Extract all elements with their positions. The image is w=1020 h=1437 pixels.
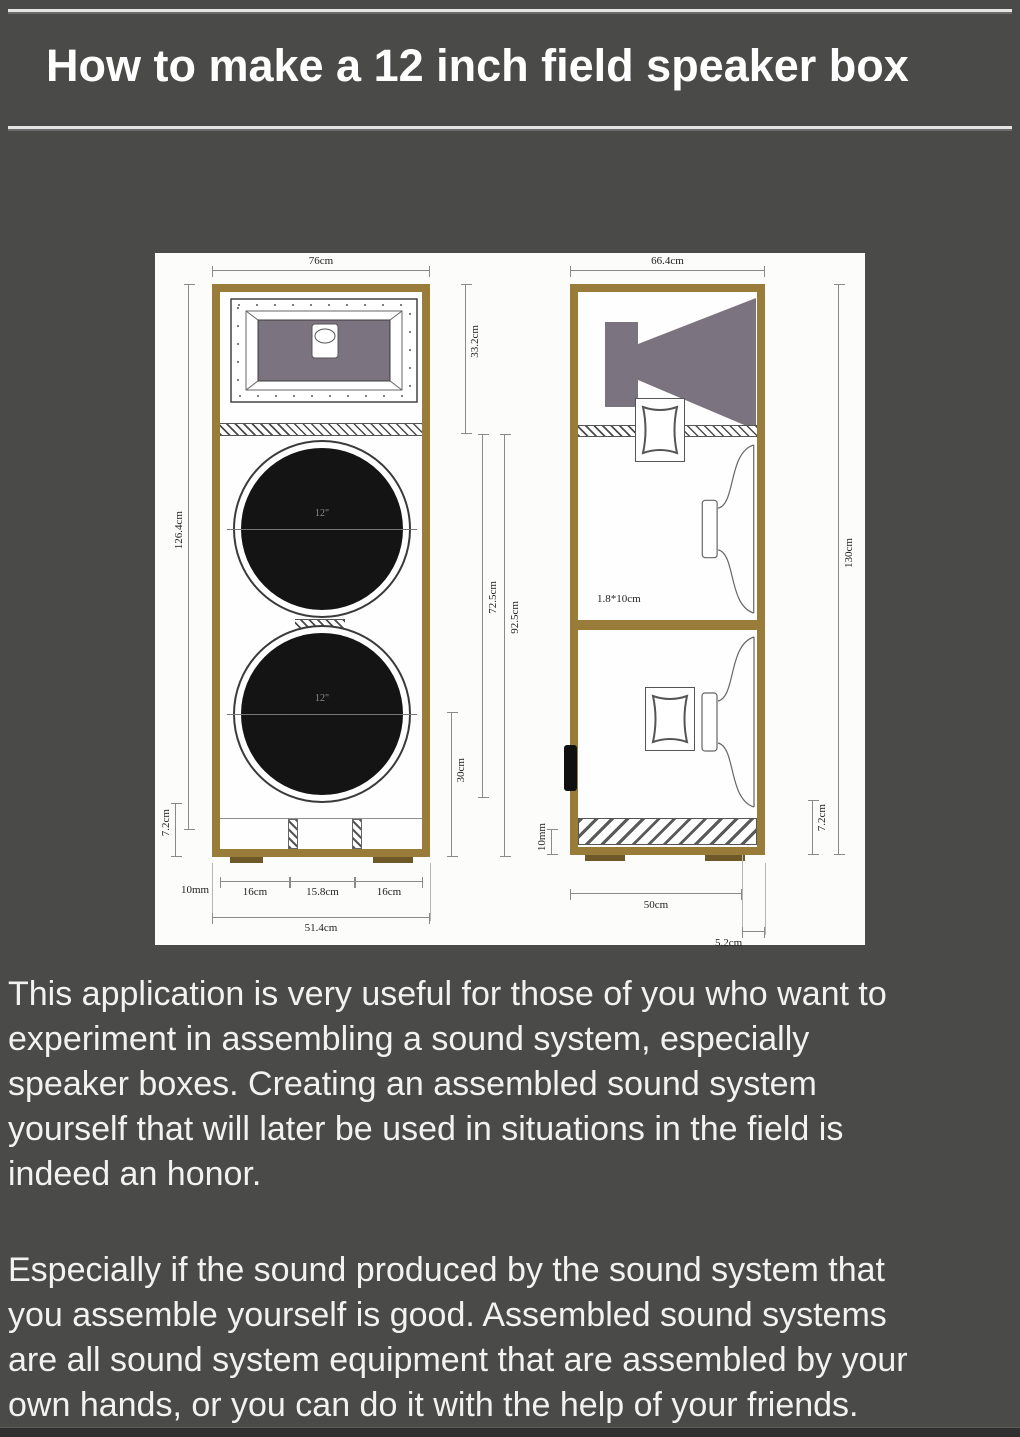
paragraph-2-line-2: you assemble yourself is good. Assembled… [8,1296,887,1334]
lower-speaker-size-label: 12" [235,693,409,704]
dim-line-side-bottom-width [570,893,742,894]
horn-tweeter-front [230,298,418,403]
dim-side-base: 7.2cm [816,804,828,831]
dim-line-side-base [812,800,813,855]
lower-speaker-12in: 12" [233,625,411,803]
paragraph-2-line-4: own hands, or you can do it with the hel… [8,1386,859,1424]
dim-front-base: 7.2cm [160,809,172,836]
speaker-terminal [564,745,577,791]
front-divider-brace [220,423,422,436]
cross-brace-lower-profile [646,688,694,750]
paragraph-1-line-1: This application is very useful for thos… [8,975,887,1013]
dim-line-front-base [175,803,176,857]
paragraph-2: Especially if the sound produced by the … [8,1248,1012,1428]
dim-line-side-top-width [570,270,765,271]
dim-speaker-section: 92.5cm [509,601,521,634]
dim-line-horn-section [465,284,466,434]
paragraph-1-line-4: yourself that will later be used in situ… [8,1110,843,1148]
divider-top [8,9,1012,14]
side-foot-right [705,855,745,861]
ext-line-side-right [765,863,766,935]
lower-woofer-side-profile [700,631,757,813]
page-title: How to make a 12 inch field speaker box [46,40,909,92]
paragraph-1-line-2: experiment in assembling a sound system,… [8,1020,809,1058]
dim-line-front-bottom-width [212,917,430,918]
dim-side-height: 130cm [843,538,855,568]
dim-side-top-width: 66.4cm [570,255,765,267]
upper-speaker-12in: 12" [233,440,411,618]
divider-under-title [8,126,1012,131]
upper-speaker-size-label: 12" [235,508,409,519]
side-foot-left [585,855,625,861]
dim-line-side-height [838,284,839,855]
dim-port-section: 30cm [455,758,467,782]
front-foot-right [373,857,413,863]
dim-side-bottom-width: 50cm [570,899,742,911]
dim-line-speaker-section [504,434,505,857]
paragraph-1: This application is very useful for thos… [8,972,1012,1197]
port-post-right [352,819,362,849]
dim-line-port-left [220,881,290,882]
dim-line-port-section [451,712,452,857]
dim-port-right: 16cm [355,886,423,898]
dim-side-offset: 5.2cm [715,937,742,949]
dim-side-wall-thickness: 10mm [536,823,548,851]
dim-front-top-width: 76cm [212,255,430,267]
upper-speaker-centerline [227,529,417,530]
dim-line-front-height [188,284,189,830]
upper-woofer-side-profile [700,439,757,619]
paragraph-1-line-5: indeed an honor. [8,1155,261,1193]
dim-front-height: 126.4cm [173,511,185,549]
paragraph-1-line-3: speaker boxes. Creating an assembled sou… [8,1065,817,1103]
dim-horn-section: 33.2cm [469,325,481,358]
cross-brace-upper-profile [636,399,684,461]
dim-line-side-wall [551,829,552,855]
cross-brace-upper [635,398,685,462]
article-page: How to make a 12 inch field speaker box … [0,0,1020,1437]
ext-line-side-inner [742,855,743,931]
dim-line-port-right [355,881,423,882]
dim-front-wall-thickness: 10mm [181,884,209,896]
side-middle-shelf [578,620,757,630]
bottom-edge [0,1427,1020,1437]
dim-brace-size: 1.8*10cm [597,593,641,605]
port-post-left [288,819,298,849]
lower-speaker-centerline [227,714,417,715]
dim-line-front-top-width [212,270,430,271]
dim-port-left: 16cm [220,886,290,898]
speaker-box-diagram: 76cm 12" 12" [155,253,865,945]
dim-port-center: 15.8cm [290,886,355,898]
ext-line-front-right [430,863,431,921]
dim-line-speaker-inner [482,434,483,798]
dim-speaker-inner: 72.5cm [487,581,499,614]
paragraph-2-line-1: Especially if the sound produced by the … [8,1251,885,1289]
dim-line-side-offset [742,931,765,932]
cross-brace-lower [645,687,695,751]
front-foot-left [230,857,263,863]
paragraph-2-line-3: are all sound system equipment that are … [8,1341,908,1379]
port-board-line [220,818,422,819]
dim-line-port-center [290,881,355,882]
dim-front-bottom-width: 51.4cm [212,922,430,934]
side-bottom-panel-hatch [578,818,757,845]
